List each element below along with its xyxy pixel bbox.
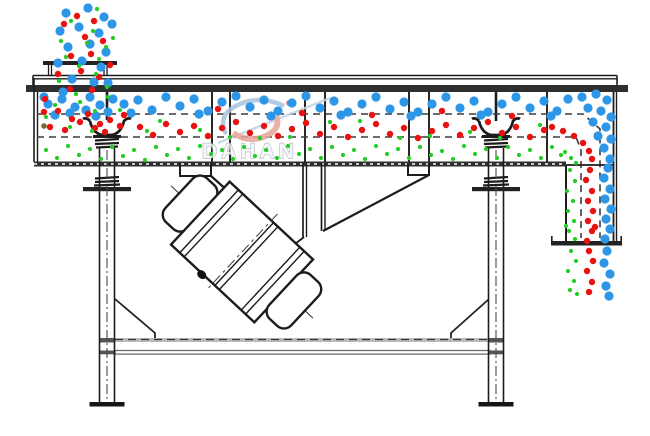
particle-green <box>398 136 402 140</box>
particle-red <box>47 124 53 130</box>
particle-red <box>429 128 435 134</box>
particle-green <box>563 150 567 154</box>
particle-green <box>198 128 202 132</box>
particle-green <box>574 161 578 165</box>
particle-dark <box>41 123 47 129</box>
particle-blue <box>605 269 614 278</box>
particle-blue <box>605 184 614 193</box>
particle-blue <box>497 99 506 108</box>
particle-red <box>100 38 106 44</box>
particle-red <box>77 119 83 125</box>
particle-blue <box>599 173 608 182</box>
particle-green <box>564 224 568 228</box>
particle-green <box>154 145 158 149</box>
particle-red <box>289 126 295 132</box>
particle-red <box>89 87 95 93</box>
particle-green <box>118 108 122 112</box>
particle-green <box>575 292 579 296</box>
particle-green <box>66 144 70 148</box>
particle-green <box>517 153 521 157</box>
particle-green <box>308 147 312 151</box>
particle-blue <box>119 99 128 108</box>
particle-blue <box>133 95 142 104</box>
particle-blue <box>126 108 135 117</box>
particle-green <box>539 156 543 160</box>
particle-red <box>205 133 211 139</box>
particle-green <box>571 199 575 203</box>
particle-red <box>67 86 73 92</box>
particle-blue <box>601 122 610 131</box>
particle-green <box>559 153 563 157</box>
particle-green <box>275 156 279 160</box>
particle-blue <box>53 58 62 67</box>
particle-red <box>74 13 80 19</box>
particle-red <box>471 125 477 131</box>
particle-green <box>132 148 136 152</box>
particle-red <box>247 130 253 136</box>
particle-blue <box>406 111 415 120</box>
particle-red <box>62 127 68 133</box>
particle-green <box>573 179 577 183</box>
particle-blue <box>511 92 520 101</box>
particle-blue <box>606 134 615 143</box>
particle-red <box>509 113 515 119</box>
particle-blue <box>606 112 615 121</box>
particle-red <box>549 124 555 130</box>
particle-green <box>566 269 570 273</box>
particle-red <box>215 106 221 112</box>
particle-green <box>574 259 578 263</box>
particle-green <box>572 219 576 223</box>
particle-red <box>331 124 337 130</box>
particle-green <box>77 64 81 68</box>
cross-beam-lower <box>115 351 490 355</box>
particle-green <box>176 147 180 151</box>
particle-red <box>457 132 463 138</box>
particle-blue <box>315 103 324 112</box>
particle-green <box>341 153 345 157</box>
particle-green <box>328 120 332 124</box>
particle-blue <box>603 163 612 172</box>
particle-blue <box>175 101 184 110</box>
particle-red <box>91 18 97 24</box>
gusset-left <box>115 299 155 338</box>
particle-red <box>303 120 309 126</box>
particle-green <box>44 115 48 119</box>
particle-red <box>69 116 75 122</box>
particle-red <box>586 289 592 295</box>
particle-red <box>219 125 225 131</box>
particle-blue <box>593 131 602 140</box>
particle-green <box>565 189 569 193</box>
particle-green <box>253 154 257 158</box>
particle-green <box>550 145 554 149</box>
vibrating-screen-diagram: DAHAN <box>0 0 650 436</box>
particle-red <box>589 279 595 285</box>
particle-red <box>585 218 591 224</box>
particle-blue <box>329 96 338 105</box>
particle-blue <box>266 111 275 120</box>
particle-red <box>585 198 591 204</box>
particle-red <box>439 108 445 114</box>
particle-blue <box>605 154 614 163</box>
particle-green <box>358 119 362 123</box>
particle-blue <box>94 28 103 37</box>
particle-green <box>91 29 95 33</box>
particle-blue <box>591 89 600 98</box>
particle-red <box>541 127 547 133</box>
particle-blue <box>74 22 83 31</box>
particle-red <box>41 109 47 115</box>
particle-blue <box>61 8 70 17</box>
particle-green <box>286 144 290 148</box>
particle-green <box>451 157 455 161</box>
particle-red <box>107 62 113 68</box>
particle-green <box>428 134 432 138</box>
particle-green <box>165 153 169 157</box>
particle-blue <box>67 74 76 83</box>
particle-red <box>586 148 592 154</box>
particle-red <box>177 129 183 135</box>
particle-green <box>385 152 389 156</box>
particles <box>39 3 615 300</box>
particle-red <box>560 128 566 134</box>
particle-blue <box>606 204 615 213</box>
particle-green <box>93 109 97 113</box>
particle-red <box>589 188 595 194</box>
particle-blue <box>602 246 611 255</box>
particle-green <box>231 157 235 161</box>
particle-red <box>233 119 239 125</box>
particle-green <box>121 154 125 158</box>
diagram-canvas: DAHAN <box>0 0 650 436</box>
particle-red <box>415 135 421 141</box>
particle-green <box>69 19 73 23</box>
particle-blue <box>371 92 380 101</box>
particle-blue <box>427 99 436 108</box>
particle-green <box>64 55 68 59</box>
particle-red <box>97 121 103 127</box>
particle-blue <box>600 194 609 203</box>
particle-green <box>90 129 94 133</box>
particle-green <box>187 156 191 160</box>
particle-blue <box>385 104 394 113</box>
particle-green <box>330 145 334 149</box>
particle-blue <box>476 110 485 119</box>
particle-blue <box>469 96 478 105</box>
particle-green <box>569 249 573 253</box>
particle-red <box>299 110 305 116</box>
particle-red <box>78 68 84 74</box>
particle-green <box>495 156 499 160</box>
gusset-right <box>451 299 489 338</box>
particle-green <box>59 39 63 43</box>
particle-green <box>429 153 433 157</box>
particle-blue <box>103 107 112 116</box>
particle-blue <box>85 92 94 101</box>
particle-green <box>94 72 98 76</box>
top-cover-band <box>26 85 628 92</box>
particle-green <box>145 129 149 133</box>
particle-blue <box>599 143 608 152</box>
particle-blue <box>525 103 534 112</box>
particle-red <box>55 71 61 77</box>
particle-green <box>198 144 202 148</box>
particle-blue <box>357 99 366 108</box>
particle-red <box>275 133 281 139</box>
particle-blue <box>203 106 212 115</box>
particle-blue <box>161 92 170 101</box>
particle-blue <box>231 91 240 100</box>
particle-red <box>261 123 267 129</box>
particle-green <box>88 147 92 151</box>
particle-green <box>74 92 78 96</box>
particle-red <box>592 224 598 230</box>
particle-blue <box>194 109 203 118</box>
particle-green <box>473 152 477 156</box>
particle-red <box>150 132 156 138</box>
particle-green <box>111 36 115 40</box>
particle-blue <box>596 106 605 115</box>
particle-green <box>77 153 81 157</box>
particle-green <box>568 288 572 292</box>
particle-blue <box>563 94 572 103</box>
particle-blue <box>189 94 198 103</box>
particle-green <box>99 157 103 161</box>
particle-green <box>264 148 268 152</box>
particle-green <box>104 45 108 49</box>
particle-red <box>401 125 407 131</box>
particle-red <box>590 208 596 214</box>
particle-green <box>53 103 57 107</box>
particle-green <box>567 229 571 233</box>
particle-red <box>571 133 577 139</box>
particle-green <box>468 130 472 134</box>
particle-blue <box>599 258 608 267</box>
particle-red <box>42 96 48 102</box>
particle-blue <box>336 110 345 119</box>
particle-red <box>590 258 596 264</box>
particle-red <box>485 119 491 125</box>
particle-red <box>121 112 127 118</box>
particle-red <box>443 122 449 128</box>
particle-green <box>297 152 301 156</box>
particle-green <box>566 209 570 213</box>
particle-red <box>345 134 351 140</box>
particle-red <box>107 117 113 123</box>
particle-green <box>288 135 292 139</box>
particle-blue <box>55 26 64 35</box>
particle-blue <box>588 117 597 126</box>
particle-blue <box>217 97 226 106</box>
particle-red <box>387 131 393 137</box>
particle-blue <box>95 100 104 109</box>
particle-green <box>396 147 400 151</box>
particle-green <box>484 147 488 151</box>
particle-red <box>580 140 586 146</box>
particle-red <box>584 268 590 274</box>
particle-green <box>569 156 573 160</box>
particle-blue <box>259 95 268 104</box>
particle-blue <box>57 94 66 103</box>
particle-green <box>462 144 466 148</box>
particle-blue <box>107 19 116 28</box>
particle-blue <box>601 214 610 223</box>
particle-green <box>78 100 82 104</box>
particle-blue <box>63 42 72 51</box>
particle-green <box>538 123 542 127</box>
particle-red <box>583 177 589 183</box>
particle-green <box>258 136 262 140</box>
particle-red <box>589 156 595 162</box>
vibration-motor <box>136 148 349 356</box>
particle-green <box>440 149 444 153</box>
particle-green <box>105 85 109 89</box>
particle-red <box>584 238 590 244</box>
foot-plate <box>479 402 514 407</box>
particle-green <box>106 95 110 99</box>
particle-green <box>319 156 323 160</box>
particle-red <box>317 131 323 137</box>
particle-blue <box>301 91 310 100</box>
particle-green <box>220 148 224 152</box>
particle-red <box>513 124 519 130</box>
particle-green <box>95 7 99 11</box>
particle-red <box>373 121 379 127</box>
particle-green <box>572 279 576 283</box>
particle-red <box>163 121 169 127</box>
particle-green <box>97 57 101 61</box>
particle-red <box>369 112 375 118</box>
particle-green <box>85 41 89 45</box>
particle-blue <box>605 224 614 233</box>
particle-red <box>527 134 533 140</box>
particle-green <box>55 156 59 160</box>
particle-blue <box>245 102 254 111</box>
particle-red <box>102 129 108 135</box>
particle-green <box>374 144 378 148</box>
particle-red <box>85 111 91 117</box>
particle-green <box>110 145 114 149</box>
particle-green <box>498 136 502 140</box>
particle-blue <box>99 12 108 21</box>
particle-red <box>359 127 365 133</box>
particle-red <box>55 108 61 114</box>
particle-green <box>528 148 532 152</box>
particle-green <box>352 148 356 152</box>
particle-blue <box>577 92 586 101</box>
foot-plate <box>90 402 125 407</box>
particle-green <box>242 145 246 149</box>
particle-blue <box>583 103 592 112</box>
particle-red <box>137 124 143 130</box>
particle-green <box>57 79 61 83</box>
particle-red <box>82 34 88 40</box>
particle-green <box>209 152 213 156</box>
particle-red <box>499 130 505 136</box>
particle-green <box>573 237 577 241</box>
particle-red <box>587 167 593 173</box>
particle-red <box>191 123 197 129</box>
particle-red <box>61 21 67 27</box>
particle-green <box>158 119 162 123</box>
particle-red <box>586 248 592 254</box>
particle-red <box>68 53 74 59</box>
particle-green <box>44 148 48 152</box>
particle-blue <box>287 98 296 107</box>
particle-blue <box>600 234 609 243</box>
particle-red <box>117 123 123 129</box>
particle-blue <box>441 92 450 101</box>
watermark-text: DAHAN <box>202 140 298 163</box>
particle-green <box>418 145 422 149</box>
particle-green <box>68 125 72 129</box>
particle-green <box>506 145 510 149</box>
particle-green <box>407 156 411 160</box>
particle-blue <box>455 103 464 112</box>
particle-blue <box>546 111 555 120</box>
bracket-diagonal-right <box>323 175 429 231</box>
particle-blue <box>83 3 92 12</box>
particle-blue <box>602 95 611 104</box>
particle-red <box>88 51 94 57</box>
particle-green <box>363 157 367 161</box>
particle-blue <box>108 94 117 103</box>
particle-blue <box>539 96 548 105</box>
particle-blue <box>604 291 613 300</box>
particle-blue <box>147 105 156 114</box>
particle-green <box>228 135 232 139</box>
particle-blue <box>399 97 408 106</box>
particle-blue <box>96 62 105 71</box>
particle-blue <box>601 281 610 290</box>
particle-green <box>568 168 572 172</box>
particle-green <box>143 158 147 162</box>
